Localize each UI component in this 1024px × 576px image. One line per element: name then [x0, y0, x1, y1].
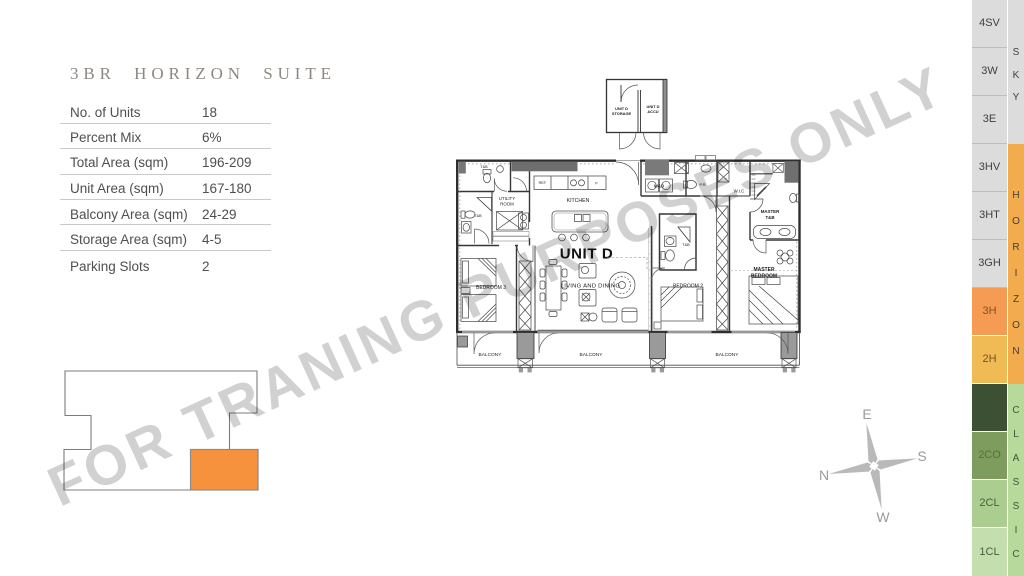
svg-text:UTILITY: UTILITY: [499, 196, 515, 201]
svg-text:MASTER: MASTER: [761, 209, 780, 214]
svg-text:T&B: T&B: [682, 243, 690, 247]
svg-text:ROOM: ROOM: [500, 202, 514, 207]
svg-text:S: S: [917, 448, 926, 464]
svg-text:E: E: [862, 406, 871, 422]
svg-text:P: P: [595, 182, 598, 186]
svg-text:MASTER: MASTER: [753, 267, 775, 273]
svg-text:T&B: T&B: [474, 214, 482, 218]
svg-text:BEDROOM: BEDROOM: [751, 274, 777, 280]
svg-text:BEDROOM 2: BEDROOM 2: [673, 284, 703, 290]
svg-text:ACCU: ACCU: [647, 109, 658, 114]
svg-text:BALCONY: BALCONY: [716, 352, 740, 358]
svg-text:STORAGE: STORAGE: [612, 111, 632, 116]
svg-text:T&B: T&B: [480, 165, 488, 169]
svg-text:T&B: T&B: [765, 215, 774, 220]
svg-text:BALCONY: BALCONY: [479, 352, 503, 358]
svg-text:BALCONY: BALCONY: [580, 352, 604, 358]
svg-text:KITCHEN: KITCHEN: [567, 198, 590, 204]
svg-text:N: N: [819, 467, 829, 483]
svg-text:REF.: REF.: [539, 181, 547, 185]
svg-text:W: W: [876, 509, 890, 525]
